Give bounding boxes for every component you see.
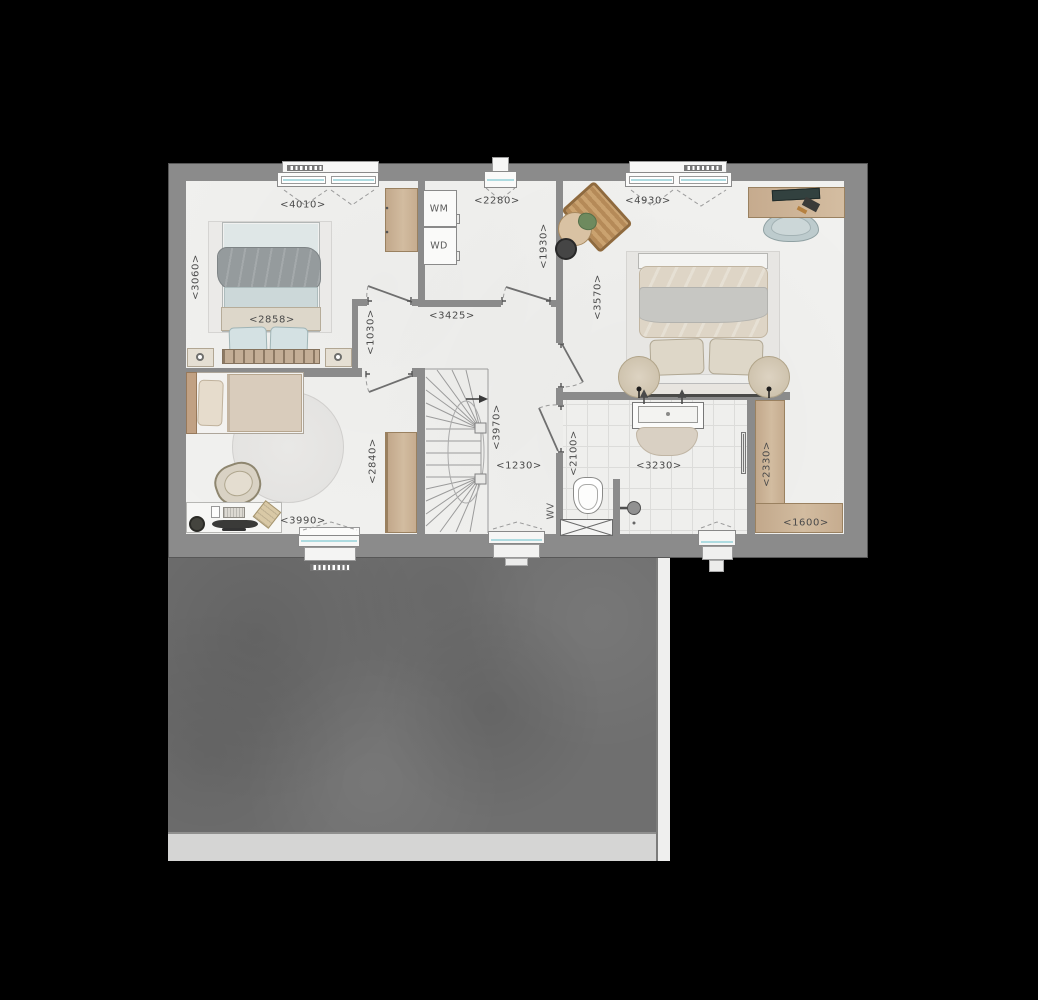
bed3-monitor [212, 520, 258, 528]
bathroom-radiator [741, 432, 746, 474]
wall-bed2-left-stub [556, 388, 563, 405]
window-walkin-box [702, 546, 733, 560]
window-bed1-glazing-right [333, 179, 374, 181]
wall-stairs-left [417, 377, 425, 534]
wall-bath-left-lower [556, 453, 563, 534]
bed3-pillow [197, 380, 224, 427]
bathroom-sink-drain [666, 412, 670, 416]
washing-machine-hinge [456, 214, 460, 224]
bed1-wardrobe [385, 188, 418, 252]
window-hall-box [493, 544, 540, 558]
bed3-monitor-base [222, 528, 246, 531]
floor-plan-canvas: <4010><3060><2858><2280><1930><4930><357… [0, 0, 1038, 1000]
roof-surface [168, 558, 656, 832]
window-bed3-glazing [301, 540, 357, 542]
bed2-sheet [639, 287, 768, 323]
window-hall-stub [505, 558, 528, 566]
bed3-desk-lamp [189, 516, 205, 532]
wall-bath-right [747, 400, 755, 534]
wall-nook-stub [352, 306, 358, 368]
window-bed2-vent-grille [684, 165, 722, 171]
window-closet-glazing [487, 179, 514, 181]
bed3-notebook [211, 506, 220, 518]
wall-exterior-left [168, 163, 186, 558]
toilet-seat [578, 484, 598, 510]
window-hall-frame [488, 531, 545, 544]
window-walkin-stub [709, 560, 724, 572]
window-bed1-glazing-left [283, 179, 324, 181]
wall-closet-bottom [425, 300, 501, 307]
window-bed3-box [304, 547, 356, 561]
bed3-wardrobe [385, 432, 417, 533]
bed1-lamp-left [196, 353, 204, 361]
window-bed3-vent-grille [310, 564, 350, 571]
shower-partition [613, 479, 620, 534]
wall-exterior-top [168, 163, 868, 181]
wall-bed2-left [556, 181, 563, 343]
bed3-keyboard [223, 507, 245, 518]
washing-machine [423, 190, 457, 227]
dryer-hinge [456, 251, 460, 261]
bed1-lamp-right [334, 353, 342, 361]
window-walkin-frame [698, 530, 736, 546]
roof-gutter [168, 832, 656, 861]
bed2-lamp-left [618, 356, 660, 398]
bed2-desk-chair-seat [771, 216, 811, 236]
bed2-floor-lamp [555, 238, 577, 260]
roof-fascia [656, 558, 670, 861]
walkin-wardrobe-horizontal [755, 503, 843, 533]
bed1-duvet [217, 247, 321, 291]
dryer [423, 227, 457, 265]
window-bed2-glazing-left [631, 179, 672, 181]
wall-bed3-door-jamb [412, 368, 425, 377]
bed1-headboard [222, 349, 320, 364]
window-bed1-vent-grille [287, 165, 323, 171]
window-hall-glazing [491, 539, 542, 541]
bed3-blanket [227, 374, 302, 432]
window-walkin-glazing [701, 541, 733, 543]
bed3-headboard [186, 372, 197, 434]
wall-exterior-right [844, 163, 868, 558]
wall-bed1-doorway-left [352, 299, 367, 306]
window-bed2-glazing-right [681, 179, 726, 181]
bed2-lamp-right [748, 356, 790, 398]
